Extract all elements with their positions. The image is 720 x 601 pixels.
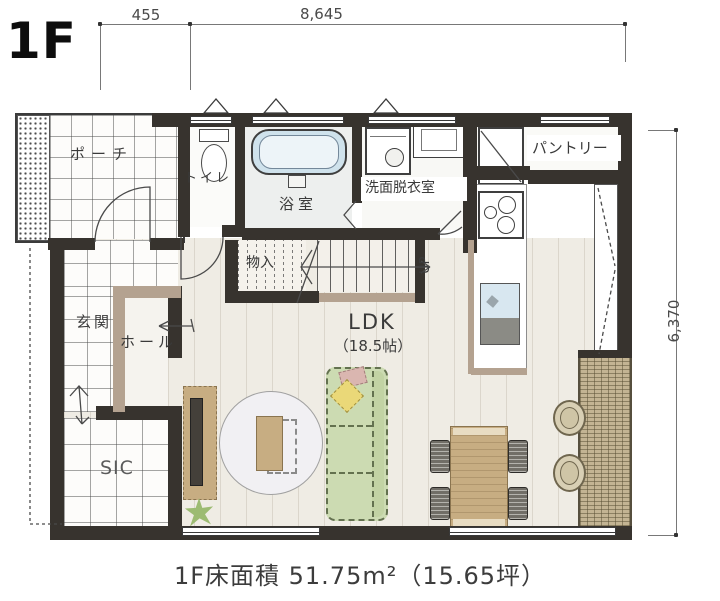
- low-table: [256, 416, 283, 471]
- stairs-up-label: UP: [419, 243, 433, 287]
- sofa-seam: [330, 472, 372, 474]
- halfwall-stairs: [319, 293, 415, 302]
- counter-edge-bottom: [471, 368, 527, 375]
- rattan-stool: [553, 454, 586, 492]
- window-toilet: [190, 116, 232, 124]
- bathtub-inner: [259, 135, 339, 169]
- wood-deck: [578, 356, 632, 528]
- dim-tick: [648, 535, 676, 536]
- wall-kitchen-top: [463, 166, 530, 180]
- stove-burner: [497, 216, 515, 234]
- wall-corridor-top: [242, 228, 440, 240]
- floor-title: 1F: [6, 12, 77, 70]
- dim-endpoint: [623, 22, 627, 26]
- room-label-toilet: トイレ: [184, 172, 232, 186]
- room-label-entrance: 玄関: [76, 314, 112, 331]
- wall-sic-right: [168, 406, 182, 540]
- dim-endpoint: [98, 22, 102, 26]
- wall-porch-bottom-left: [48, 238, 95, 250]
- window-washroom: [368, 116, 456, 124]
- wall-pantry-bottom: [528, 170, 632, 184]
- dining-table-end: [453, 519, 505, 526]
- dim-endpoint: [674, 128, 678, 132]
- porch-outline: [15, 113, 185, 243]
- toilet-tank-icon: [199, 129, 229, 142]
- dim-tick: [190, 24, 191, 90]
- vanity-mirror: [421, 129, 457, 151]
- room-label-porch: ポーチ: [70, 146, 133, 163]
- dining-table: [450, 426, 508, 534]
- window-bath: [252, 116, 344, 124]
- room-label-hall: ホール: [120, 334, 177, 351]
- wall-post: [178, 227, 186, 237]
- room-label-bath: 浴室: [279, 196, 317, 213]
- wall-left: [50, 238, 64, 540]
- room-label-sic: SIC: [100, 458, 134, 479]
- hall-floor: [125, 298, 168, 408]
- dim-tick: [648, 130, 676, 131]
- floorplan-page: 1F 455 8,645 6,370: [0, 0, 720, 601]
- dining-chair: [508, 487, 528, 520]
- sofa-seam: [330, 425, 372, 427]
- room-label-washroom: 洗面脱衣室: [365, 181, 435, 196]
- wall-storage-bottom: [225, 291, 319, 303]
- dim-label-6370: 6,370: [665, 289, 683, 353]
- washing-machine-icon: [365, 127, 411, 175]
- vent-mark: [374, 99, 398, 113]
- vent-mark: [264, 99, 288, 113]
- room-label-storage: 物入: [246, 256, 274, 271]
- counter-edge-left: [468, 240, 474, 374]
- stove-burner: [498, 196, 516, 214]
- room-label-ldk-size: （18.5帖）: [318, 338, 428, 355]
- bath-faucet-icon: [288, 175, 306, 188]
- rattan-stool: [553, 400, 586, 436]
- window-pantry: [540, 116, 610, 124]
- dim-label-8645: 8,645: [300, 5, 343, 23]
- wall-toilet-bottom: [222, 225, 242, 237]
- tv-icon: [190, 398, 203, 486]
- dim-tick: [100, 24, 101, 90]
- tall-cabinet: [594, 184, 618, 356]
- dim-tick: [625, 24, 626, 62]
- stairs: [317, 238, 415, 292]
- dining-chair: [508, 440, 528, 473]
- dim-line-top: [100, 24, 625, 25]
- room-label-pantry: パントリー: [532, 140, 608, 157]
- dining-table-end: [453, 428, 505, 435]
- dining-chair: [430, 487, 450, 520]
- stove-burner: [484, 206, 497, 219]
- dim-endpoint: [674, 533, 678, 537]
- window-dining-south: [449, 527, 616, 536]
- room-label-ldk: LDK: [332, 311, 412, 334]
- floor-area-caption: 1F床面積 51.75m²（15.65坪）: [0, 556, 720, 591]
- sink-drainboard: [481, 318, 519, 344]
- vent-mark: [204, 99, 228, 113]
- dim-label-455: 455: [118, 6, 174, 24]
- wall-deck-top: [578, 350, 632, 358]
- dining-chair: [430, 440, 450, 473]
- wall-toilet-bath: [235, 113, 245, 235]
- sofa-backrest: [372, 371, 384, 517]
- wall-porch-bottom-right: [150, 238, 184, 250]
- dim-endpoint: [188, 22, 192, 26]
- window-living-south: [182, 527, 320, 536]
